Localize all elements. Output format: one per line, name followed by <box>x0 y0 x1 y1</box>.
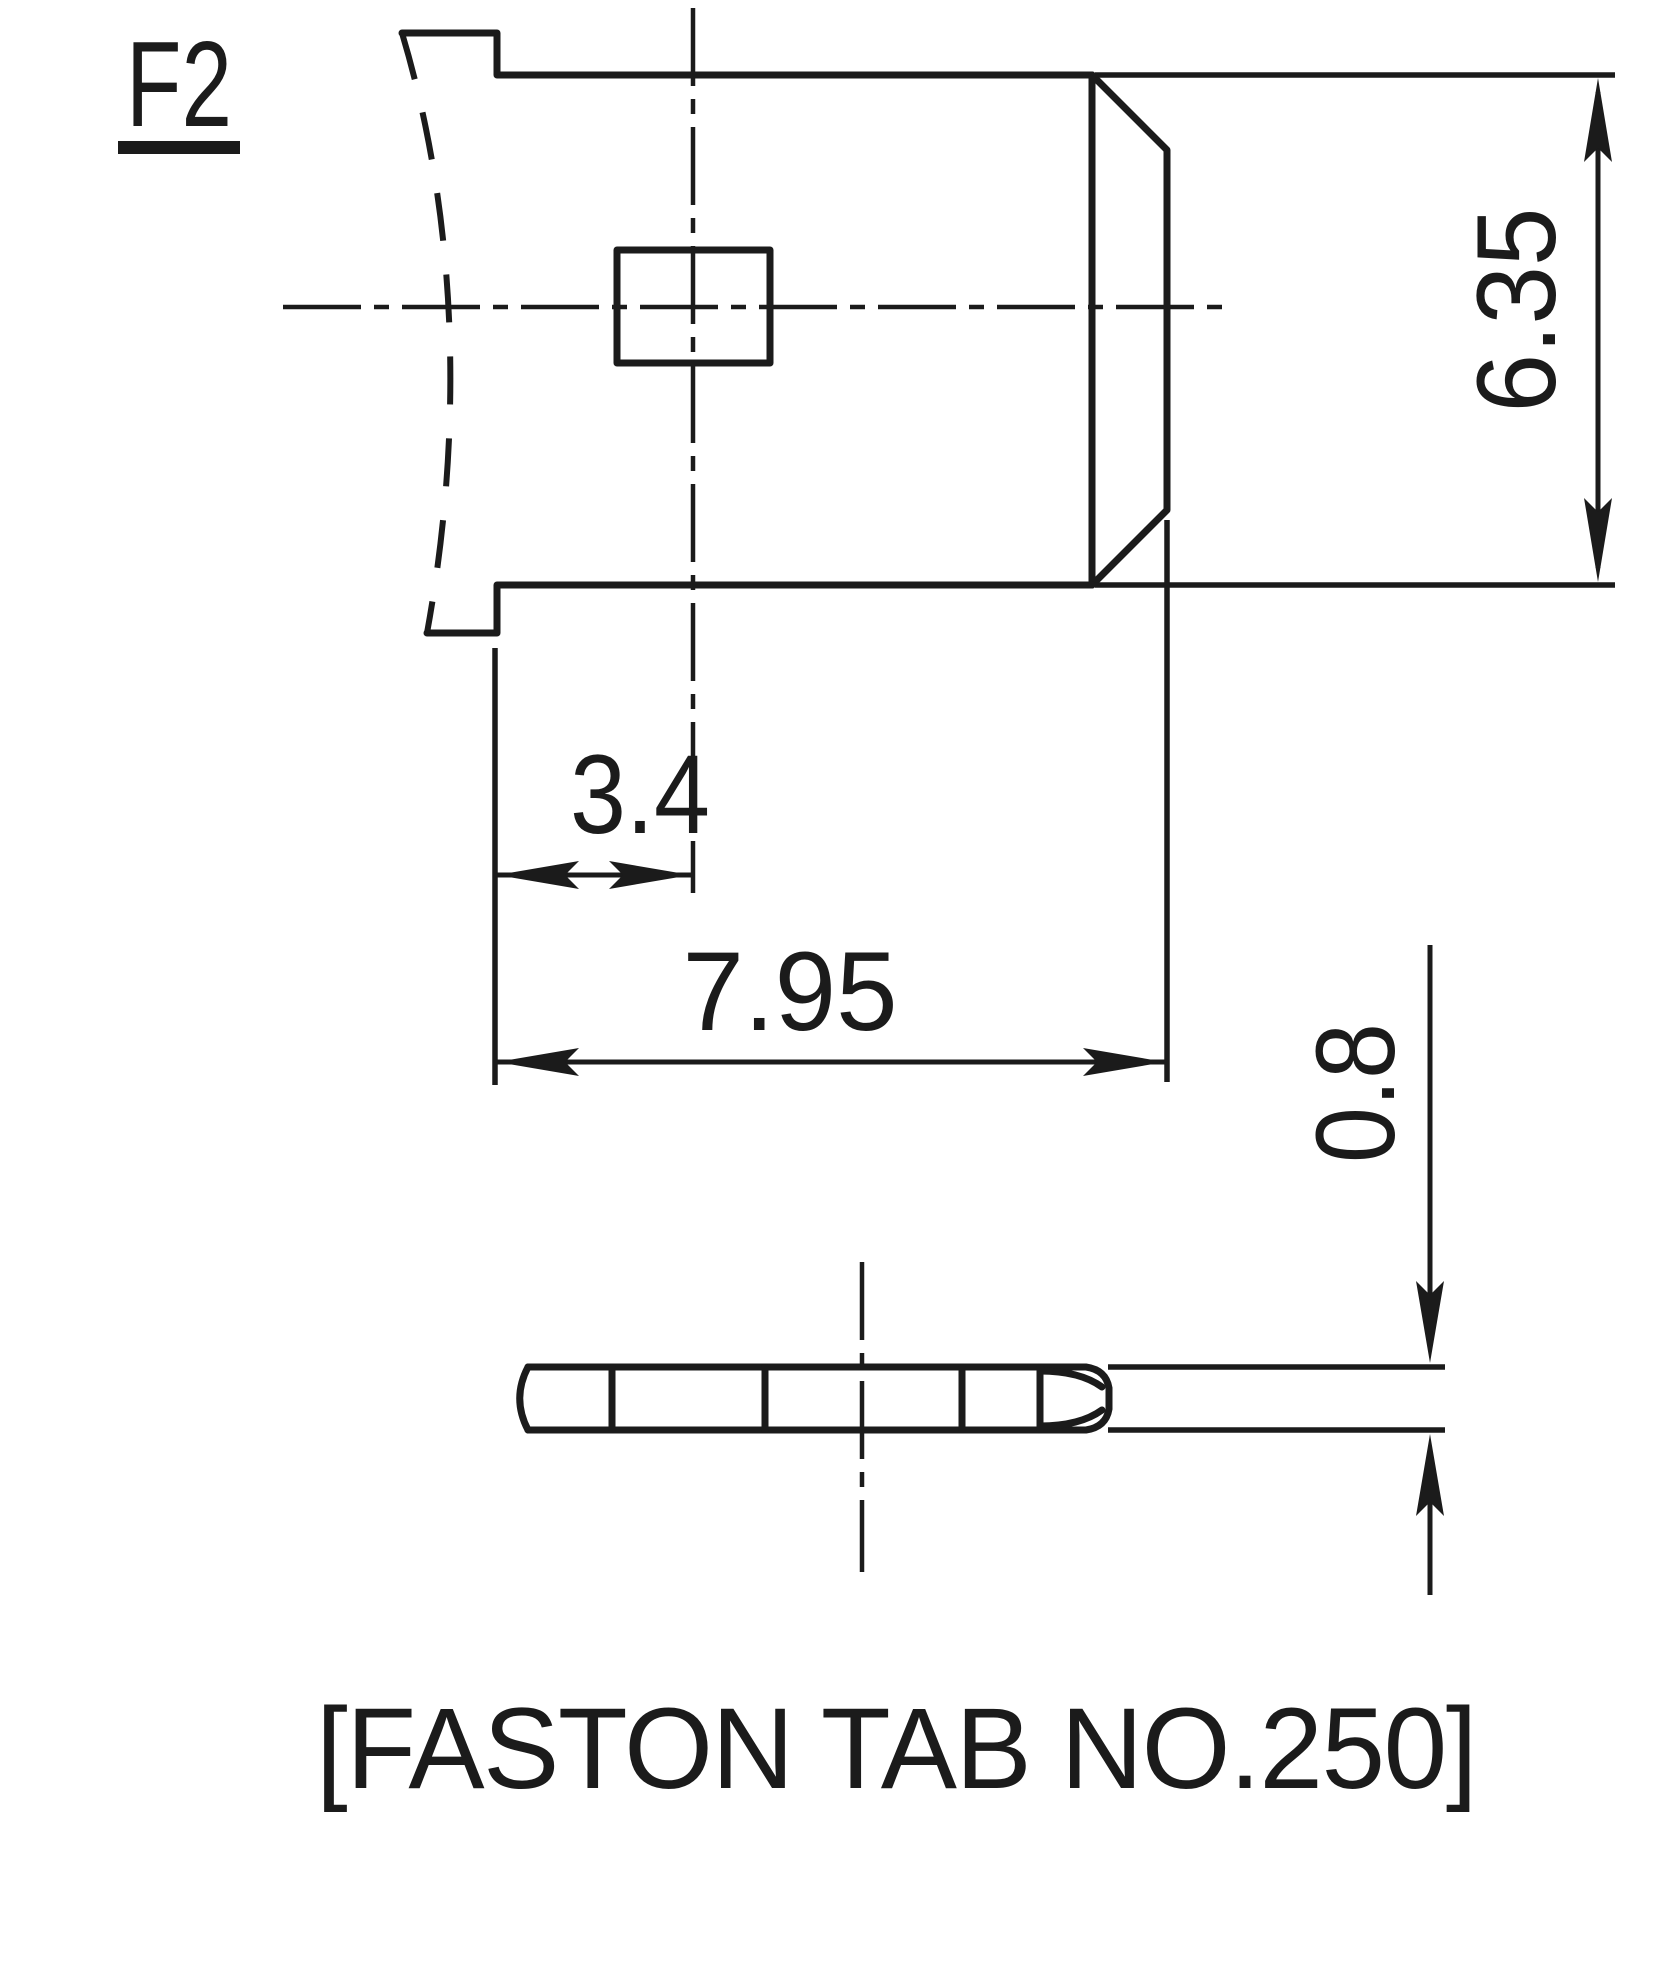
dim-tab-length: 7.95 <box>497 929 1165 1076</box>
terminal-type-label: F2 <box>126 16 232 152</box>
dim-tab-length-value: 7.95 <box>683 929 898 1054</box>
tab-top-edge <box>402 33 1092 75</box>
strip-break-edge <box>520 1367 528 1430</box>
dim-thickness: 0.8 <box>1108 945 1445 1595</box>
dim-hole-offset-value: 3.4 <box>570 732 710 857</box>
dim-thickness-value: 0.8 <box>1293 1023 1418 1163</box>
tab-bottom-edge <box>427 585 1092 633</box>
terminal-label-underline <box>118 141 240 154</box>
dim-tab-width: 6.35 <box>1454 78 1612 582</box>
side-view: 0.8 <box>520 945 1445 1595</box>
top-view: 6.35 3.4 7.95 <box>283 8 1615 1085</box>
tip-taper-top <box>1040 1371 1102 1387</box>
technical-drawing-page: F2 <box>0 0 1672 1980</box>
tab-tip-chamfer-edge <box>1092 75 1167 585</box>
dim-tab-width-text-group: 6.35 <box>1454 208 1579 413</box>
dim-tab-width-value: 6.35 <box>1454 208 1579 413</box>
dim-thickness-text-group: 0.8 <box>1293 1023 1418 1163</box>
caption: [FASTON TAB NO.250] <box>316 1685 1476 1813</box>
terminal-type-label-group: F2 <box>118 16 240 154</box>
tip-taper-bottom <box>1040 1410 1102 1426</box>
dim-hole-offset: 3.4 <box>497 732 710 889</box>
faston-tab-drawing: F2 <box>0 0 1672 1980</box>
break-line <box>402 33 450 633</box>
